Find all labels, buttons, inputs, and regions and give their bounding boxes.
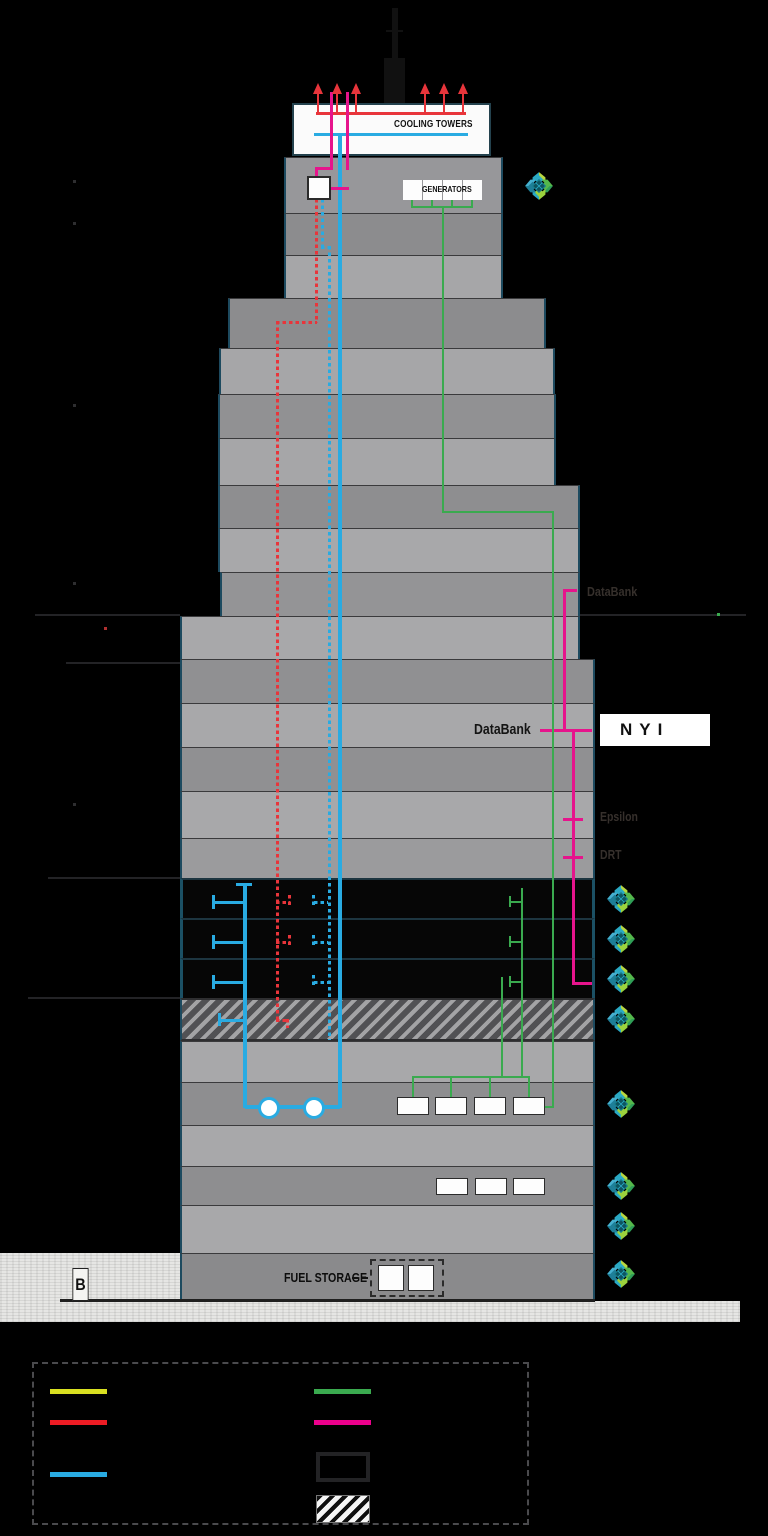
nyi-box: NYI <box>600 714 710 746</box>
pipe-segment <box>545 1106 554 1108</box>
exhaust-arrow-stem <box>336 93 339 113</box>
nyi-label: NYI <box>620 720 669 740</box>
pipe-segment <box>286 1019 289 1028</box>
exhaust-arrow-icon <box>439 83 449 94</box>
pipe-segment <box>442 206 444 513</box>
exhaust-arrow-icon <box>458 83 468 94</box>
pump-icon <box>303 1097 325 1119</box>
pipe-segment <box>563 818 583 821</box>
exhaust-arrow-icon <box>351 83 361 94</box>
pipe-segment <box>214 981 244 984</box>
building-floor <box>180 659 595 703</box>
pipe-segment <box>563 856 583 859</box>
pipe-segment <box>321 199 324 248</box>
exhaust-arrow-stem <box>317 93 320 113</box>
pipe-segment <box>511 981 523 983</box>
pinwheel-logo-icon <box>604 1004 638 1034</box>
building-floor <box>180 1125 595 1166</box>
legend-swatch-box-hatched <box>316 1495 370 1523</box>
pump-icon <box>258 1097 280 1119</box>
pipe-segment <box>563 589 566 732</box>
tick-dot <box>73 180 76 183</box>
rooftop-equipment-box <box>307 176 331 200</box>
pipe-segment <box>212 935 215 949</box>
building-floor <box>180 747 595 791</box>
legend-swatch-line <box>50 1389 107 1394</box>
generators-label: GENERATORS <box>422 184 472 194</box>
pipe-segment <box>540 729 592 732</box>
pinwheel-logo-icon <box>522 171 556 201</box>
fuel-storage-leader-dash <box>362 1277 368 1279</box>
pipe-segment <box>316 167 333 170</box>
pipe-segment <box>214 901 244 904</box>
pipe-segment <box>214 941 244 944</box>
building-floor <box>218 528 580 572</box>
pipe-segment <box>552 511 554 1108</box>
equipment-box <box>513 1178 545 1195</box>
pipe-segment <box>288 935 291 948</box>
pipe-segment <box>412 1076 414 1097</box>
antenna-crossbar <box>386 30 403 32</box>
legend-swatch-line <box>50 1472 107 1477</box>
ground-line <box>60 1299 595 1302</box>
equipment-box <box>436 1178 468 1195</box>
building-floor <box>218 394 556 438</box>
tenant-label-dim-databank: DataBank <box>587 584 637 599</box>
building-floor <box>180 838 595 878</box>
antenna-spire-base <box>384 58 405 104</box>
pipe-segment <box>276 321 279 1021</box>
equipment-box <box>435 1097 467 1115</box>
pinwheel-logo-icon <box>604 884 638 914</box>
pipe-segment <box>450 1076 452 1097</box>
pipe-segment <box>521 888 523 1078</box>
equipment-box <box>474 1097 506 1115</box>
pipe-segment <box>338 133 342 1108</box>
pipe-segment <box>288 895 291 908</box>
floor-leader-line <box>35 614 180 616</box>
pipe-segment <box>236 883 252 886</box>
ground-left <box>0 1253 180 1301</box>
tick-dot <box>73 222 76 225</box>
equipment-box <box>475 1178 507 1195</box>
pinwheel-logo-icon <box>604 1211 638 1241</box>
pipe-segment <box>509 896 511 907</box>
pipe-segment <box>218 1013 221 1026</box>
databank-label: DataBank <box>474 721 531 738</box>
tick-dot <box>73 582 76 585</box>
exhaust-arrow-stem <box>443 93 446 113</box>
building-floor <box>219 348 555 394</box>
pipe-segment <box>220 1019 244 1022</box>
exhaust-arrow-icon <box>332 83 342 94</box>
pinwheel-logo-icon <box>604 1259 638 1289</box>
pipe-segment <box>312 935 315 948</box>
pinwheel-logo-icon <box>604 924 638 954</box>
pipe-segment <box>315 199 318 323</box>
tick-dot <box>73 803 76 806</box>
floor-leader-line <box>580 614 746 616</box>
pinwheel-logo-icon <box>604 1089 638 1119</box>
ground-strip <box>0 1301 740 1322</box>
floor-leader-line <box>66 662 180 664</box>
legend-swatch-box-outline <box>316 1452 370 1482</box>
building-floor <box>220 572 580 616</box>
building-floor <box>180 616 580 659</box>
exhaust-arrow-stem <box>424 93 427 113</box>
pipe-segment <box>572 982 592 985</box>
pinwheel-logo-icon <box>604 1171 638 1201</box>
building-floor <box>180 1205 595 1253</box>
pipe-segment <box>212 975 215 989</box>
pipe-segment <box>511 941 523 943</box>
building-floor <box>180 791 595 838</box>
equipment-box <box>397 1097 429 1115</box>
pipe-segment <box>243 884 247 1108</box>
exhaust-arrow-stem <box>355 93 358 113</box>
pipe-segment <box>328 246 331 1040</box>
building-floor <box>218 485 580 528</box>
legend-box <box>32 1362 529 1525</box>
legend-swatch-line <box>314 1389 371 1394</box>
pipe-segment <box>501 977 503 1078</box>
pipe-segment <box>412 1076 530 1078</box>
fuel-storage-leader-dash <box>352 1277 358 1279</box>
building-floor <box>180 703 595 747</box>
equipment-box <box>513 1097 545 1115</box>
pipe-segment <box>312 895 315 908</box>
pipe-segment <box>509 936 511 947</box>
tenant-label-dim-drt: DRT <box>600 848 622 862</box>
exhaust-arrow-icon <box>420 83 430 94</box>
pipe-segment <box>314 981 328 984</box>
building-cross-section-diagram: COOLING TOWERS GENERATORS DataBank Epsil… <box>0 0 768 1536</box>
basement-marker: B <box>72 1268 88 1301</box>
pipe-segment <box>212 895 215 909</box>
pipe-segment <box>330 92 333 169</box>
legend-swatch-line <box>314 1420 371 1425</box>
exhaust-arrow-icon <box>313 83 323 94</box>
pipe-segment <box>511 901 523 903</box>
pipe-segment <box>346 92 349 170</box>
pipe-segment <box>442 511 554 513</box>
building-floor <box>218 438 556 485</box>
tick-dot <box>104 627 107 630</box>
tick-dot <box>73 404 76 407</box>
equipment-box <box>378 1265 404 1291</box>
floor-leader-line <box>48 877 180 879</box>
pipe-segment <box>509 976 511 987</box>
exhaust-arrow-stem <box>462 93 465 113</box>
pipe-segment <box>489 1076 491 1097</box>
pipe-segment <box>314 901 328 904</box>
floor-leader-line <box>28 997 180 999</box>
equipment-box <box>403 180 422 200</box>
legend-swatch-line <box>50 1420 107 1425</box>
pipe-segment <box>312 975 315 988</box>
equipment-box <box>408 1265 434 1291</box>
pipe-segment <box>276 321 317 324</box>
tick-dot <box>717 613 720 616</box>
pipe-segment <box>528 1076 530 1097</box>
pipe-segment <box>314 941 328 944</box>
tenant-label-dim-epsilon: Epsilon <box>600 810 638 824</box>
pinwheel-logo-icon <box>604 964 638 994</box>
cooling-towers-label: COOLING TOWERS <box>394 119 473 130</box>
